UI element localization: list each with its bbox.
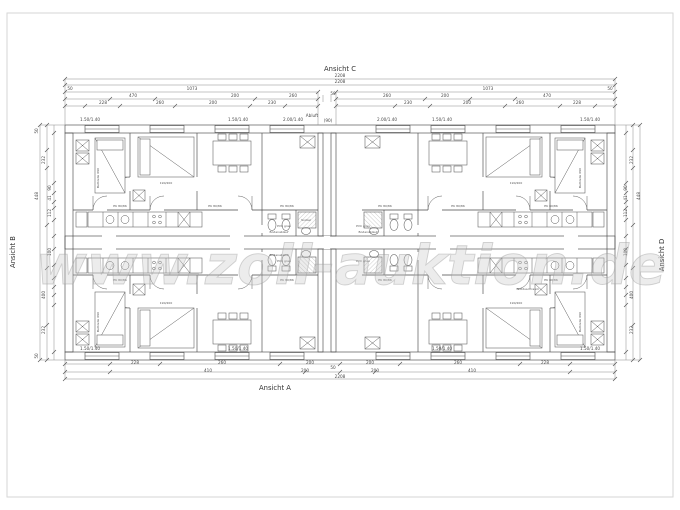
dimension-label: 200	[209, 100, 217, 105]
dimension-label: 448	[636, 192, 641, 200]
dimension-label: 200	[371, 368, 379, 373]
dimension-label: 90	[47, 185, 52, 191]
dimension-label: 41	[47, 195, 52, 201]
dimension-label: 1.50/1.40	[580, 346, 600, 351]
dimension-label: (90)	[324, 118, 333, 123]
dimension-label: 228	[573, 100, 581, 105]
watermark-text: www.zoll-auktion.de	[36, 234, 666, 297]
dimension-label: 260	[289, 93, 297, 98]
dimension-label: 90	[623, 185, 628, 191]
dimension-label: 1073	[187, 86, 198, 91]
dimension-label: 200	[301, 368, 309, 373]
dimension-label: 260	[156, 100, 164, 105]
dimension-label: 1.50/1.40	[80, 117, 100, 122]
dimension-label: 1.50/1.40	[80, 346, 100, 351]
dimension-label: 50	[34, 128, 39, 134]
dimension-label: 230	[404, 100, 412, 105]
dimension-label: 41	[623, 195, 628, 201]
dimension-label: 470	[129, 93, 137, 98]
floorplan-drawing: 2208220850107310735050470200260260200470…	[0, 0, 680, 510]
kitchen-counter	[76, 212, 202, 227]
plan-label: 190/200	[160, 301, 173, 305]
dining-table	[213, 134, 251, 172]
dimension-label: 112	[47, 209, 52, 217]
bed	[95, 137, 194, 193]
dimension-label: 228	[99, 100, 107, 105]
plan-label: EK 80/86	[378, 204, 392, 208]
plan-label: EK 80/86	[544, 204, 558, 208]
dimension-label: 228	[541, 360, 549, 365]
plan-label: EK 80/86	[280, 204, 294, 208]
plan-label: PVC grau	[356, 224, 370, 228]
view-label-bottom: Ansicht A	[259, 384, 291, 392]
dimension-label: 200	[441, 93, 449, 98]
dimension-label: 50	[67, 86, 73, 91]
dimension-label: 50	[34, 353, 39, 359]
dimension-label: 1073	[483, 86, 494, 91]
plan-label: 190/200	[510, 181, 523, 185]
plan-label: Bettzelle 090	[96, 312, 100, 332]
dimension-label: 2.00/1.40	[377, 117, 397, 122]
dimension-label: 1.50/1.40	[228, 346, 248, 351]
dimension-label: 410	[468, 368, 476, 373]
dimension-label: 2208	[335, 374, 346, 379]
dimension-label: 50	[607, 86, 613, 91]
dimension-label: 448	[34, 192, 39, 200]
dimension-label: 232	[629, 156, 634, 164]
dimension-label: 470	[543, 93, 551, 98]
dimension-label: 2208	[335, 79, 346, 84]
dimension-label: 50	[330, 91, 336, 96]
dimension-label: 1.50/1.40	[580, 117, 600, 122]
plan-label: 190/200	[160, 181, 173, 185]
dimension-label: 228	[131, 360, 139, 365]
plan-label: EK 80/86	[113, 204, 127, 208]
dimension-label: Abluft	[306, 113, 319, 118]
dimension-label: 232	[41, 156, 46, 164]
dimension-label: 260	[383, 93, 391, 98]
dimension-label: 232	[629, 326, 634, 334]
unit-quadrant	[73, 133, 318, 236]
plan-label: Bettzelle 090	[578, 168, 582, 188]
dimension-label: 50	[330, 365, 336, 370]
plan-label: Sockel	[301, 218, 311, 222]
dimension-label: 2208	[335, 73, 346, 78]
dimension-label: 1.50/1.40	[432, 117, 452, 122]
dimension-label: 2.00/1.40	[283, 117, 303, 122]
drawing-page: 2208220850107310735050470200260260200470…	[0, 0, 680, 510]
plan-label: 190/200	[510, 301, 523, 305]
dimension-label: 260	[218, 360, 226, 365]
dimension-label: 230	[268, 100, 276, 105]
plan-label: Bettzelle 090	[96, 168, 100, 188]
dimension-label: 1.50/1.40	[432, 346, 452, 351]
dimension-label: 260	[516, 100, 524, 105]
dimension-label: 200	[306, 360, 314, 365]
dimension-label: 200	[366, 360, 374, 365]
dimension-label: 232	[41, 326, 46, 334]
plan-label: PVC grau	[277, 224, 291, 228]
fridge	[76, 212, 87, 227]
plan-label: EK 80/86	[208, 204, 222, 208]
dimension-label: 200	[231, 93, 239, 98]
plan-label: Bettzelle 090	[578, 312, 582, 332]
dimension-lines	[38, 77, 642, 381]
dimension-label: 410	[204, 368, 212, 373]
dimension-label: 260	[454, 360, 462, 365]
dimension-label: 200	[463, 100, 471, 105]
dimension-label: 1.50/1.40	[228, 117, 248, 122]
toilet	[268, 220, 276, 231]
plan-label: EK 80/86	[451, 204, 465, 208]
view-label-top: Ansicht C	[324, 65, 356, 73]
dimension-label: 112	[623, 209, 628, 217]
view-label-left: Ansicht B	[9, 236, 17, 268]
